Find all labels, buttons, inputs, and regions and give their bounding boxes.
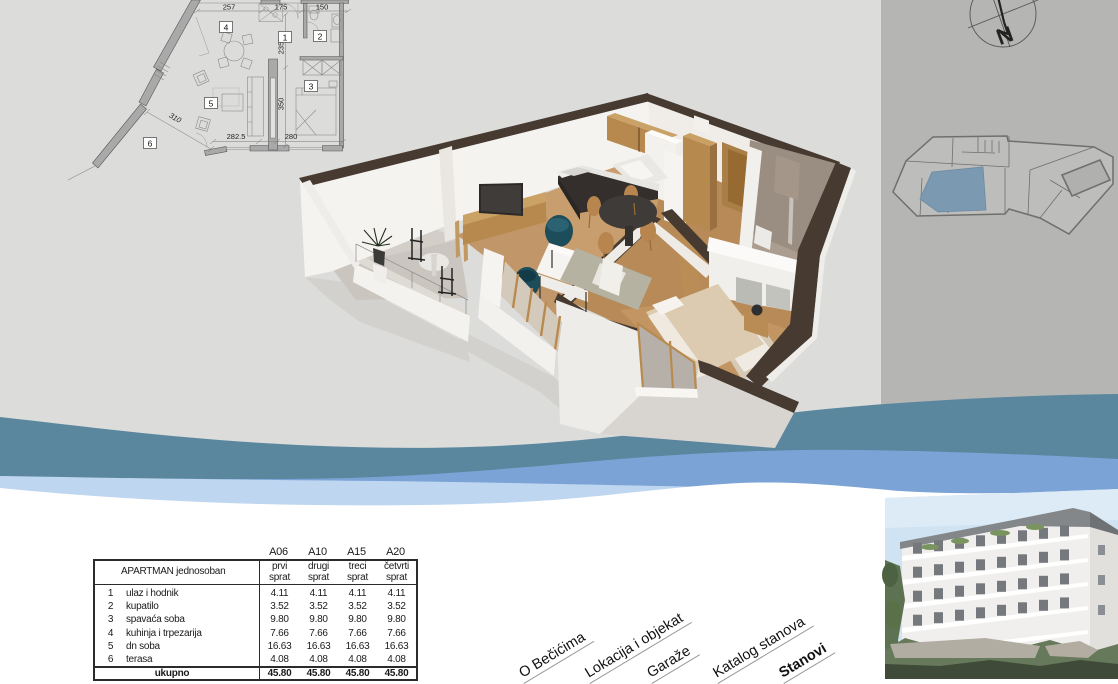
svg-text:5: 5 <box>209 99 214 109</box>
svg-text:350: 350 <box>277 98 286 111</box>
svg-text:6: 6 <box>148 139 153 149</box>
svg-text:282.5: 282.5 <box>227 132 246 141</box>
svg-text:1: 1 <box>283 33 288 43</box>
svg-text:3: 3 <box>309 82 314 92</box>
svg-text:280: 280 <box>285 132 298 141</box>
svg-text:235: 235 <box>277 42 286 55</box>
svg-text:150: 150 <box>316 3 329 12</box>
svg-text:257: 257 <box>223 3 236 12</box>
svg-text:2: 2 <box>318 32 323 42</box>
svg-text:175: 175 <box>275 3 288 12</box>
svg-text:4: 4 <box>224 23 229 33</box>
